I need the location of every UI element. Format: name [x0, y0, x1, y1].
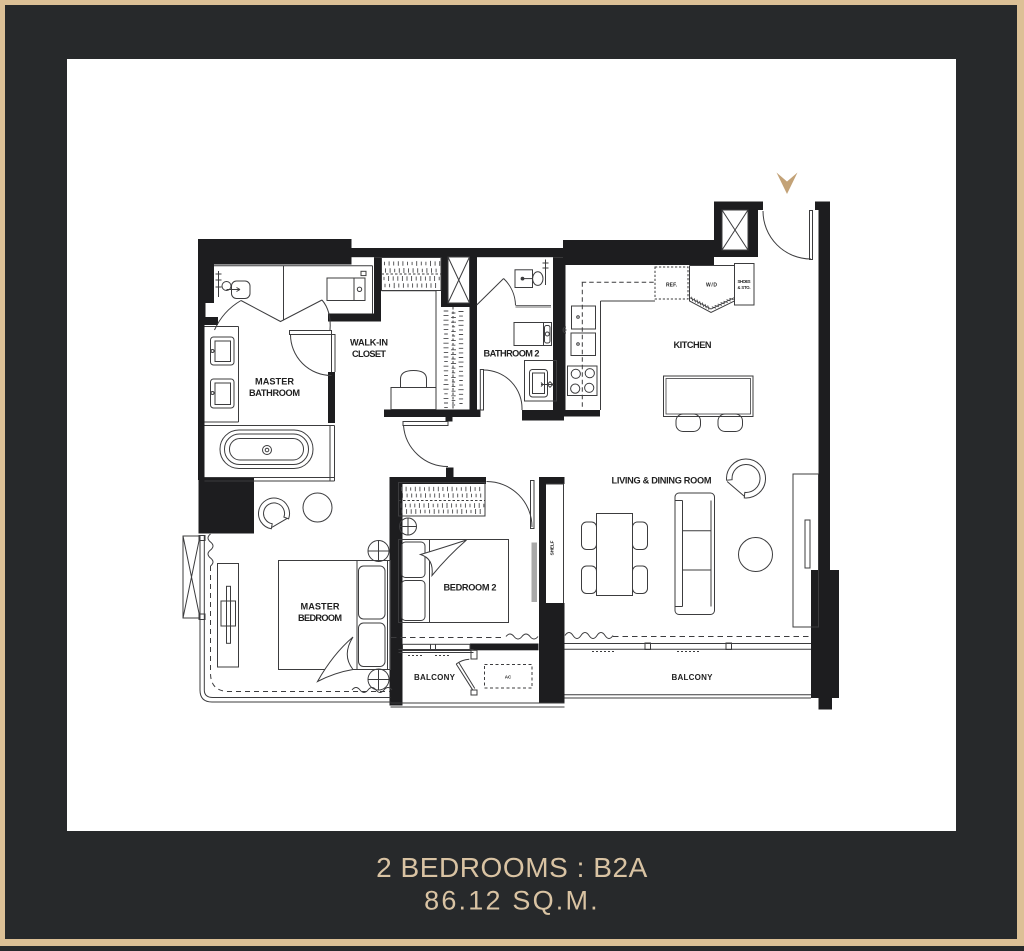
- svg-text:86.12 SQ.M.: 86.12 SQ.M.: [424, 886, 600, 916]
- svg-text:BALCONY: BALCONY: [672, 673, 714, 682]
- svg-text:LIVING & DINING ROOM: LIVING & DINING ROOM: [612, 476, 712, 486]
- svg-text:REF.: REF.: [666, 283, 678, 289]
- svg-text:KITCHEN: KITCHEN: [674, 340, 712, 350]
- svg-text:WALK-IN: WALK-IN: [350, 338, 388, 348]
- svg-text:& STO.: & STO.: [738, 285, 751, 290]
- svg-text:SHOES: SHOES: [738, 279, 751, 284]
- svg-text:SHELF: SHELF: [550, 540, 555, 555]
- svg-text:BEDROOM: BEDROOM: [298, 613, 342, 623]
- svg-text:MASTER: MASTER: [301, 602, 340, 612]
- svg-text:AC: AC: [505, 675, 512, 680]
- svg-text:BALCONY: BALCONY: [414, 673, 456, 682]
- svg-text:BATHROOM: BATHROOM: [249, 388, 300, 398]
- svg-text:CLOSET: CLOSET: [352, 349, 386, 359]
- svg-text:BATHROOM 2: BATHROOM 2: [484, 349, 540, 359]
- svg-text:BEDROOM 2: BEDROOM 2: [444, 583, 497, 593]
- svg-text:MASTER: MASTER: [255, 377, 294, 387]
- svg-text:2 BEDROOMS : B2A: 2 BEDROOMS : B2A: [376, 852, 648, 883]
- svg-text:W/D: W/D: [706, 283, 717, 289]
